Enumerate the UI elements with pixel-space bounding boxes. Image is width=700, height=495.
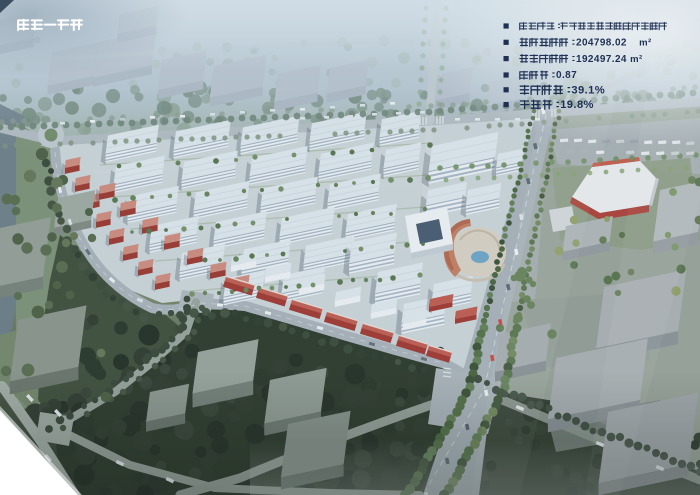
svg-text:0.87: 0.87: [556, 70, 577, 81]
svg-text:m²: m²: [639, 38, 651, 49]
svg-text:m²: m²: [630, 54, 642, 65]
svg-text:39.1%: 39.1%: [571, 84, 605, 96]
svg-text:204798.02: 204798.02: [576, 38, 627, 49]
svg-text:192497.24: 192497.24: [576, 54, 627, 65]
svg-text:19.8%: 19.8%: [560, 99, 594, 111]
